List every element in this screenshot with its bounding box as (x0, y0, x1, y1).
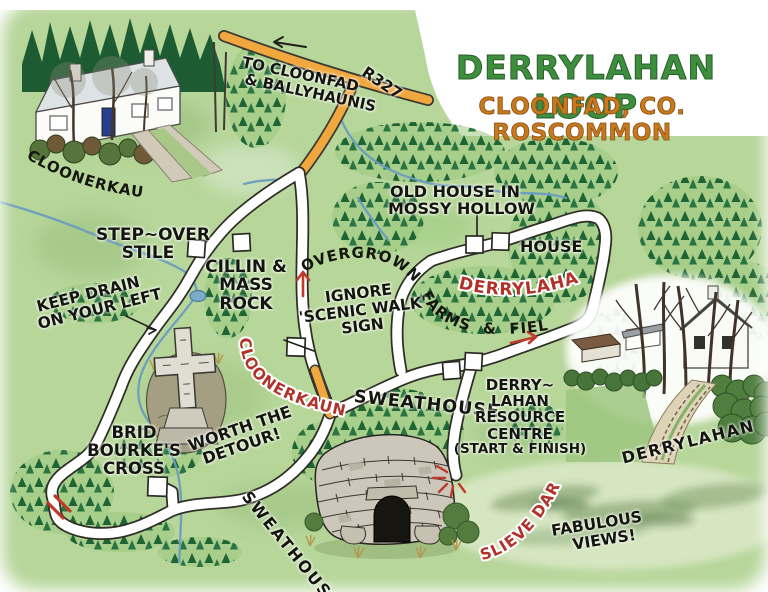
marker-old-house (466, 236, 483, 253)
cillin-mass-rock-label: CILLIN & MASS ROCK (202, 258, 290, 313)
house-label: HOUSE (520, 238, 582, 255)
bourkes-cross-label: BRID BOURKE'S CROSS (78, 424, 190, 477)
map-subtitle: CLOONFAD, CO. ROSCOMMON (398, 94, 766, 146)
resource-centre-label: DERRY~ LAHAN RESOURCE CENTRE (START & FI… (452, 377, 588, 456)
old-house-label: OLD HOUSE IN MOSSY HOLLOW (388, 183, 522, 218)
marker-bourkes-cross (148, 477, 168, 497)
marker-house (492, 233, 510, 251)
marker-resource-centre (465, 353, 483, 371)
marker-cillin-mass-rock (233, 234, 251, 252)
step-over-stile-label: STEP~OVER STILE (96, 226, 200, 263)
derrylahan-loop-map: CLOONERKAUN OVERGROWN FARMS & FIELDS CLO… (0, 0, 768, 592)
